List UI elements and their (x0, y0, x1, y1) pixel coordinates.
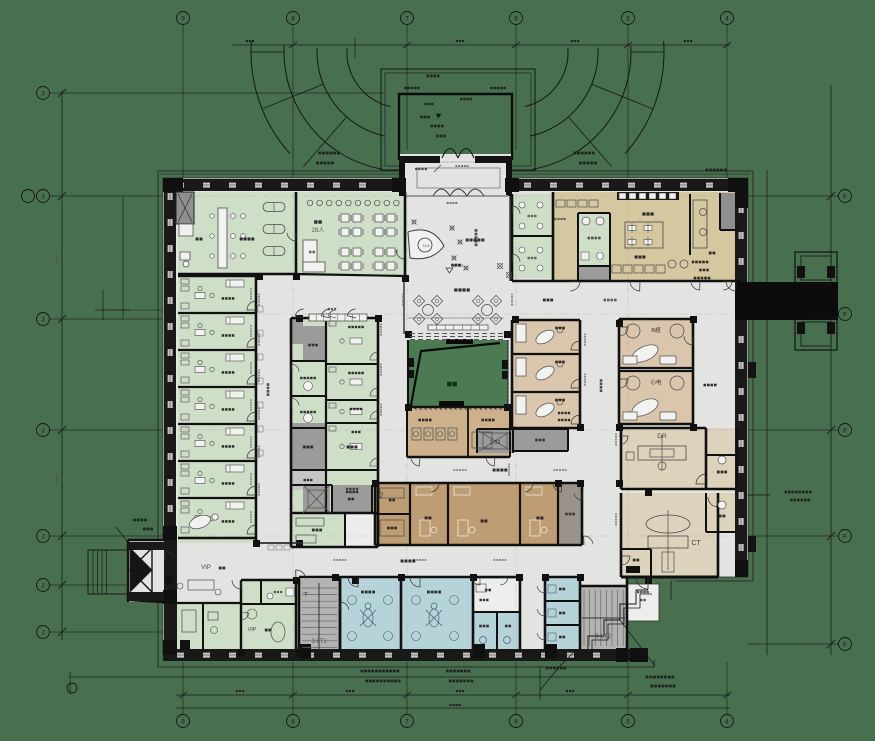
svg-text:J: J (42, 92, 45, 98)
svg-text:3-LT1: 3-LT1 (311, 639, 327, 645)
svg-text:B超: B超 (651, 326, 661, 334)
svg-text:J: J (42, 429, 45, 435)
svg-text:CT: CT (691, 540, 701, 547)
svg-text:下: 下 (303, 592, 308, 598)
svg-text:VIP: VIP (248, 627, 257, 633)
svg-text:13.8: 13.8 (423, 244, 430, 248)
svg-text:VIP: VIP (201, 565, 211, 571)
svg-text:F: F (843, 429, 847, 435)
svg-text:J: J (42, 318, 45, 324)
svg-text:J: J (42, 584, 45, 590)
svg-text:J: J (42, 631, 45, 637)
svg-text:3-S2: 3-S2 (490, 440, 501, 446)
svg-text:心电: 心电 (650, 378, 662, 386)
svg-text:J: J (42, 195, 45, 201)
svg-text:F: F (843, 195, 847, 201)
svg-text:F: F (843, 643, 847, 649)
svg-text:F: F (843, 313, 847, 319)
svg-text:28人: 28人 (312, 227, 325, 234)
svg-text:J: J (42, 535, 45, 541)
svg-text:F: F (843, 535, 847, 541)
